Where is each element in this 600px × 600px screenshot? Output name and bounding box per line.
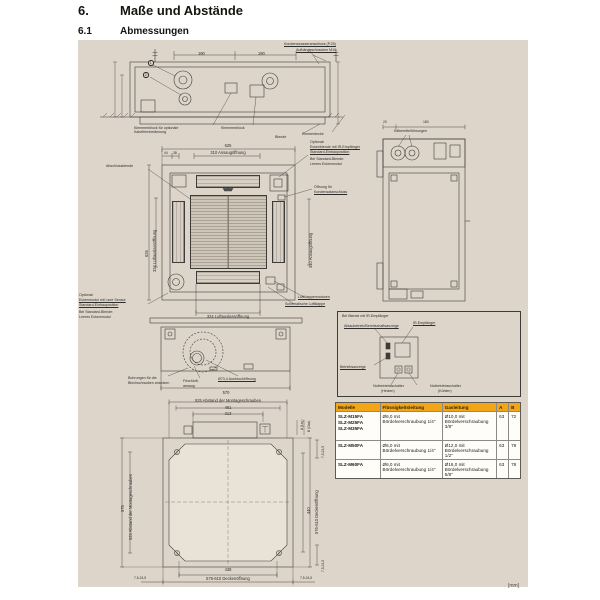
b-cell: 78 xyxy=(508,459,520,478)
model-name: SLZ-M60FA xyxy=(338,462,378,468)
liquid-pipe-cell: Ø6,0 mit Bördelverschraubung 1/4" xyxy=(380,440,442,459)
installation-view-drawing xyxy=(108,395,328,595)
dim-180: 180 xyxy=(423,120,429,124)
dim-corner-bottom-right: 7,5-24,5 xyxy=(300,576,312,580)
defrost-indicator-label: Abtaubetrieb/Bereitschaftsanzeige xyxy=(344,324,399,328)
dim-38: 38 xyxy=(173,151,177,155)
dim-575: 575 xyxy=(120,505,125,512)
a-cell: 63 xyxy=(496,411,508,440)
screw-holes-label-2: Blechschrauben ansetzen xyxy=(128,381,169,385)
ceiling-label: Zimmerdecke xyxy=(302,132,324,136)
terminal-block-optional-label: Klemmenblock für optionale Kabelfernbedi… xyxy=(134,126,204,135)
suspension-bolts-label: Aufhängeschrauben M10 xyxy=(296,48,336,52)
liquid-pipe-cell: Ø6,0 mit Bördelverschraubung 1/4" xyxy=(380,459,442,478)
screw-holes-label-1: Bohrungen für die xyxy=(128,376,157,380)
ir-receiver-label: IR-Empfänger xyxy=(413,321,435,325)
a-cell: 63 xyxy=(496,459,508,478)
dim-461: 461 xyxy=(225,405,232,410)
pipe-table: Modelle Flüssigkeitsleitung Gasleitung A… xyxy=(335,402,521,479)
dim-mounting-top: 525 Abstand der Montageschrauben xyxy=(195,398,261,403)
air-outlet-vent-left xyxy=(172,201,185,263)
dim-intake-top: 310 Ansaugöffnung xyxy=(210,150,245,155)
dim-190-right: 190 xyxy=(258,51,265,56)
dim-corner-bottom-left: 7,5-24,5 xyxy=(134,576,146,580)
dim-intake-right: 310 Ansaugöffnung xyxy=(308,233,313,268)
operation-indicator-label: Betriebsanzeige xyxy=(340,365,366,369)
model-name: SLZ-M35FA xyxy=(338,426,378,432)
corner-ir-note-3: Standard-Einbauposition xyxy=(310,150,349,154)
label-b-gas: B (Gas) xyxy=(307,421,311,432)
dim-190-left: 190 xyxy=(198,51,205,56)
dim-ceiling-bottom: 576-610 Deckenöffnung xyxy=(206,576,250,581)
fresh-air-label-2: ansaug xyxy=(183,384,195,388)
emergency-heat-label-1: Notbetriebsschalter xyxy=(373,384,404,388)
emergency-heat-label-2: (Heizen) xyxy=(381,389,395,393)
emergency-cool-label-2: (Kühlen) xyxy=(438,389,452,393)
condensate-connection-label: Kondenswasseranschluss (P.25) xyxy=(284,42,336,46)
knockout-label: Ø73,4 Ausbruchöffnung xyxy=(218,377,256,381)
side-view-drawing xyxy=(376,123,471,308)
air-outlet-vent-bottom xyxy=(196,271,260,284)
vane-motors-label: Luftklappenmotoren xyxy=(298,295,330,299)
subsection-title: Abmessungen xyxy=(120,26,189,37)
corner-ir-note-2: Eckenblende mit IR-Empfänger xyxy=(310,145,360,149)
corner-isee-note-3: Standard-Einbauposition xyxy=(79,303,118,307)
dim-ceiling-right: 576-610 Deckenöffnung xyxy=(314,490,319,534)
corner-ir-note-4: Bei Standard-Blende: xyxy=(310,157,344,161)
dim-outlet-left: 324 Luftauslassöffnung xyxy=(152,230,157,272)
model-cell: SLZ-M15FA SLZ-M25FA SLZ-M35FA xyxy=(336,411,380,440)
b-cell: 72 xyxy=(508,411,520,440)
dim-440: 440 xyxy=(306,507,311,514)
dim-438: 438 xyxy=(225,567,232,572)
intake-grille xyxy=(190,195,267,269)
air-outlet-vent-top xyxy=(196,175,260,188)
dim-corner-right-top: 7,5-24,5 xyxy=(321,446,325,458)
header-b: B xyxy=(508,403,520,411)
model-cell: SLZ-M50FA xyxy=(336,440,380,459)
drain-opening-label-2: Kondensatanschluss xyxy=(314,190,347,194)
refrigerant-pipes-label: Kältemittelführungen xyxy=(394,129,427,133)
callout-1: 1 xyxy=(148,60,154,66)
corner-isee-note-1: Optional: xyxy=(79,293,93,297)
corner-isee-note-5: Leeres Eckenmodul xyxy=(79,315,111,319)
callout-2: 2 xyxy=(143,72,149,78)
ir-box-title: Bei Blende mit IR-Empfänger xyxy=(342,314,389,318)
table-row: SLZ-M15FA SLZ-M25FA SLZ-M35FA Ø6,0 mit B… xyxy=(336,411,520,440)
air-outlet-vent-right xyxy=(272,201,285,263)
terminal-block-label: Klemmenblock xyxy=(221,126,245,130)
table-row: SLZ-M50FA Ø6,0 mit Bördelverschraubung 1… xyxy=(336,440,520,459)
header-modelle: Modelle xyxy=(336,403,380,411)
ceiling-section-drawing xyxy=(95,45,345,145)
dim-height-625: 625 xyxy=(144,250,149,257)
section-title: Maße und Abstände xyxy=(120,3,243,18)
dim-width-625: 625 xyxy=(225,143,232,148)
corner-ir-note-5: Leeres Eckenmodul xyxy=(310,162,342,166)
label-a-liquid: A (Liq.) xyxy=(300,420,304,430)
drain-opening-label-1: Öffnung für xyxy=(314,185,332,189)
dim-20: 20 xyxy=(383,120,387,124)
subsection-number: 6.1 xyxy=(78,26,92,37)
a-cell: 63 xyxy=(496,440,508,459)
section-number: 6. xyxy=(78,3,89,18)
section-view-drawing xyxy=(148,316,308,396)
header-gasleitung: Gasleitung xyxy=(442,403,496,411)
gas-pipe-cell: Ø16,0 mit Bördelverschraubung 5/8" xyxy=(442,459,496,478)
header-a: A xyxy=(496,403,508,411)
vane-label: Schematische Luftklappe xyxy=(285,302,325,306)
dim-313: 313 xyxy=(225,411,232,416)
table-row: SLZ-M60FA Ø6,0 mit Bördelverschraubung 1… xyxy=(336,459,520,478)
unit-note: [mm] xyxy=(508,583,519,589)
fresh-air-label-1: Frischluft- xyxy=(183,379,199,383)
corner-ir-note-1: Optional: xyxy=(310,140,324,144)
dim-corner-right-bottom: 7,5-24,5 xyxy=(321,560,325,572)
gas-pipe-cell: Ø10,0 mit Bördelverschraubung 3/8" xyxy=(442,411,496,440)
callout-1-number: 1 xyxy=(150,61,152,65)
emergency-cool-label-1: Notbetriebsschalter xyxy=(430,384,461,388)
corner-isee-note-4: Bei Standard-Blende: xyxy=(79,310,113,314)
drawing-panel: 190 190 Kondenswasseranschluss (P.25) Au… xyxy=(78,40,528,587)
model-cell: SLZ-M60FA xyxy=(336,459,380,478)
pipe-table-header-row: Modelle Flüssigkeitsleitung Gasleitung A… xyxy=(336,403,520,411)
b-cell: 78 xyxy=(508,440,520,459)
corner-isee-note-2: Eckenmodul mit i-see Sensor xyxy=(79,298,126,302)
liquid-pipe-cell: Ø6,0 mit Bördelverschraubung 1/4" xyxy=(380,411,442,440)
dim-mounting-left: 525 Abstand der Montageschrauben xyxy=(128,474,133,540)
callout-2-number: 2 xyxy=(145,73,147,77)
panel-label: Blende xyxy=(275,135,286,139)
grille-label: Abschlussblende xyxy=(106,164,133,168)
dim-44: 44 xyxy=(164,151,168,155)
model-name: SLZ-M50FA xyxy=(338,443,378,449)
header-fluessigkeitsleitung: Flüssigkeitsleitung xyxy=(380,403,442,411)
manual-page: { "page": { "section_number": "6.", "sec… xyxy=(0,0,600,600)
gas-pipe-cell: Ø12,0 mit Bördelverschraubung 1/2" xyxy=(442,440,496,459)
